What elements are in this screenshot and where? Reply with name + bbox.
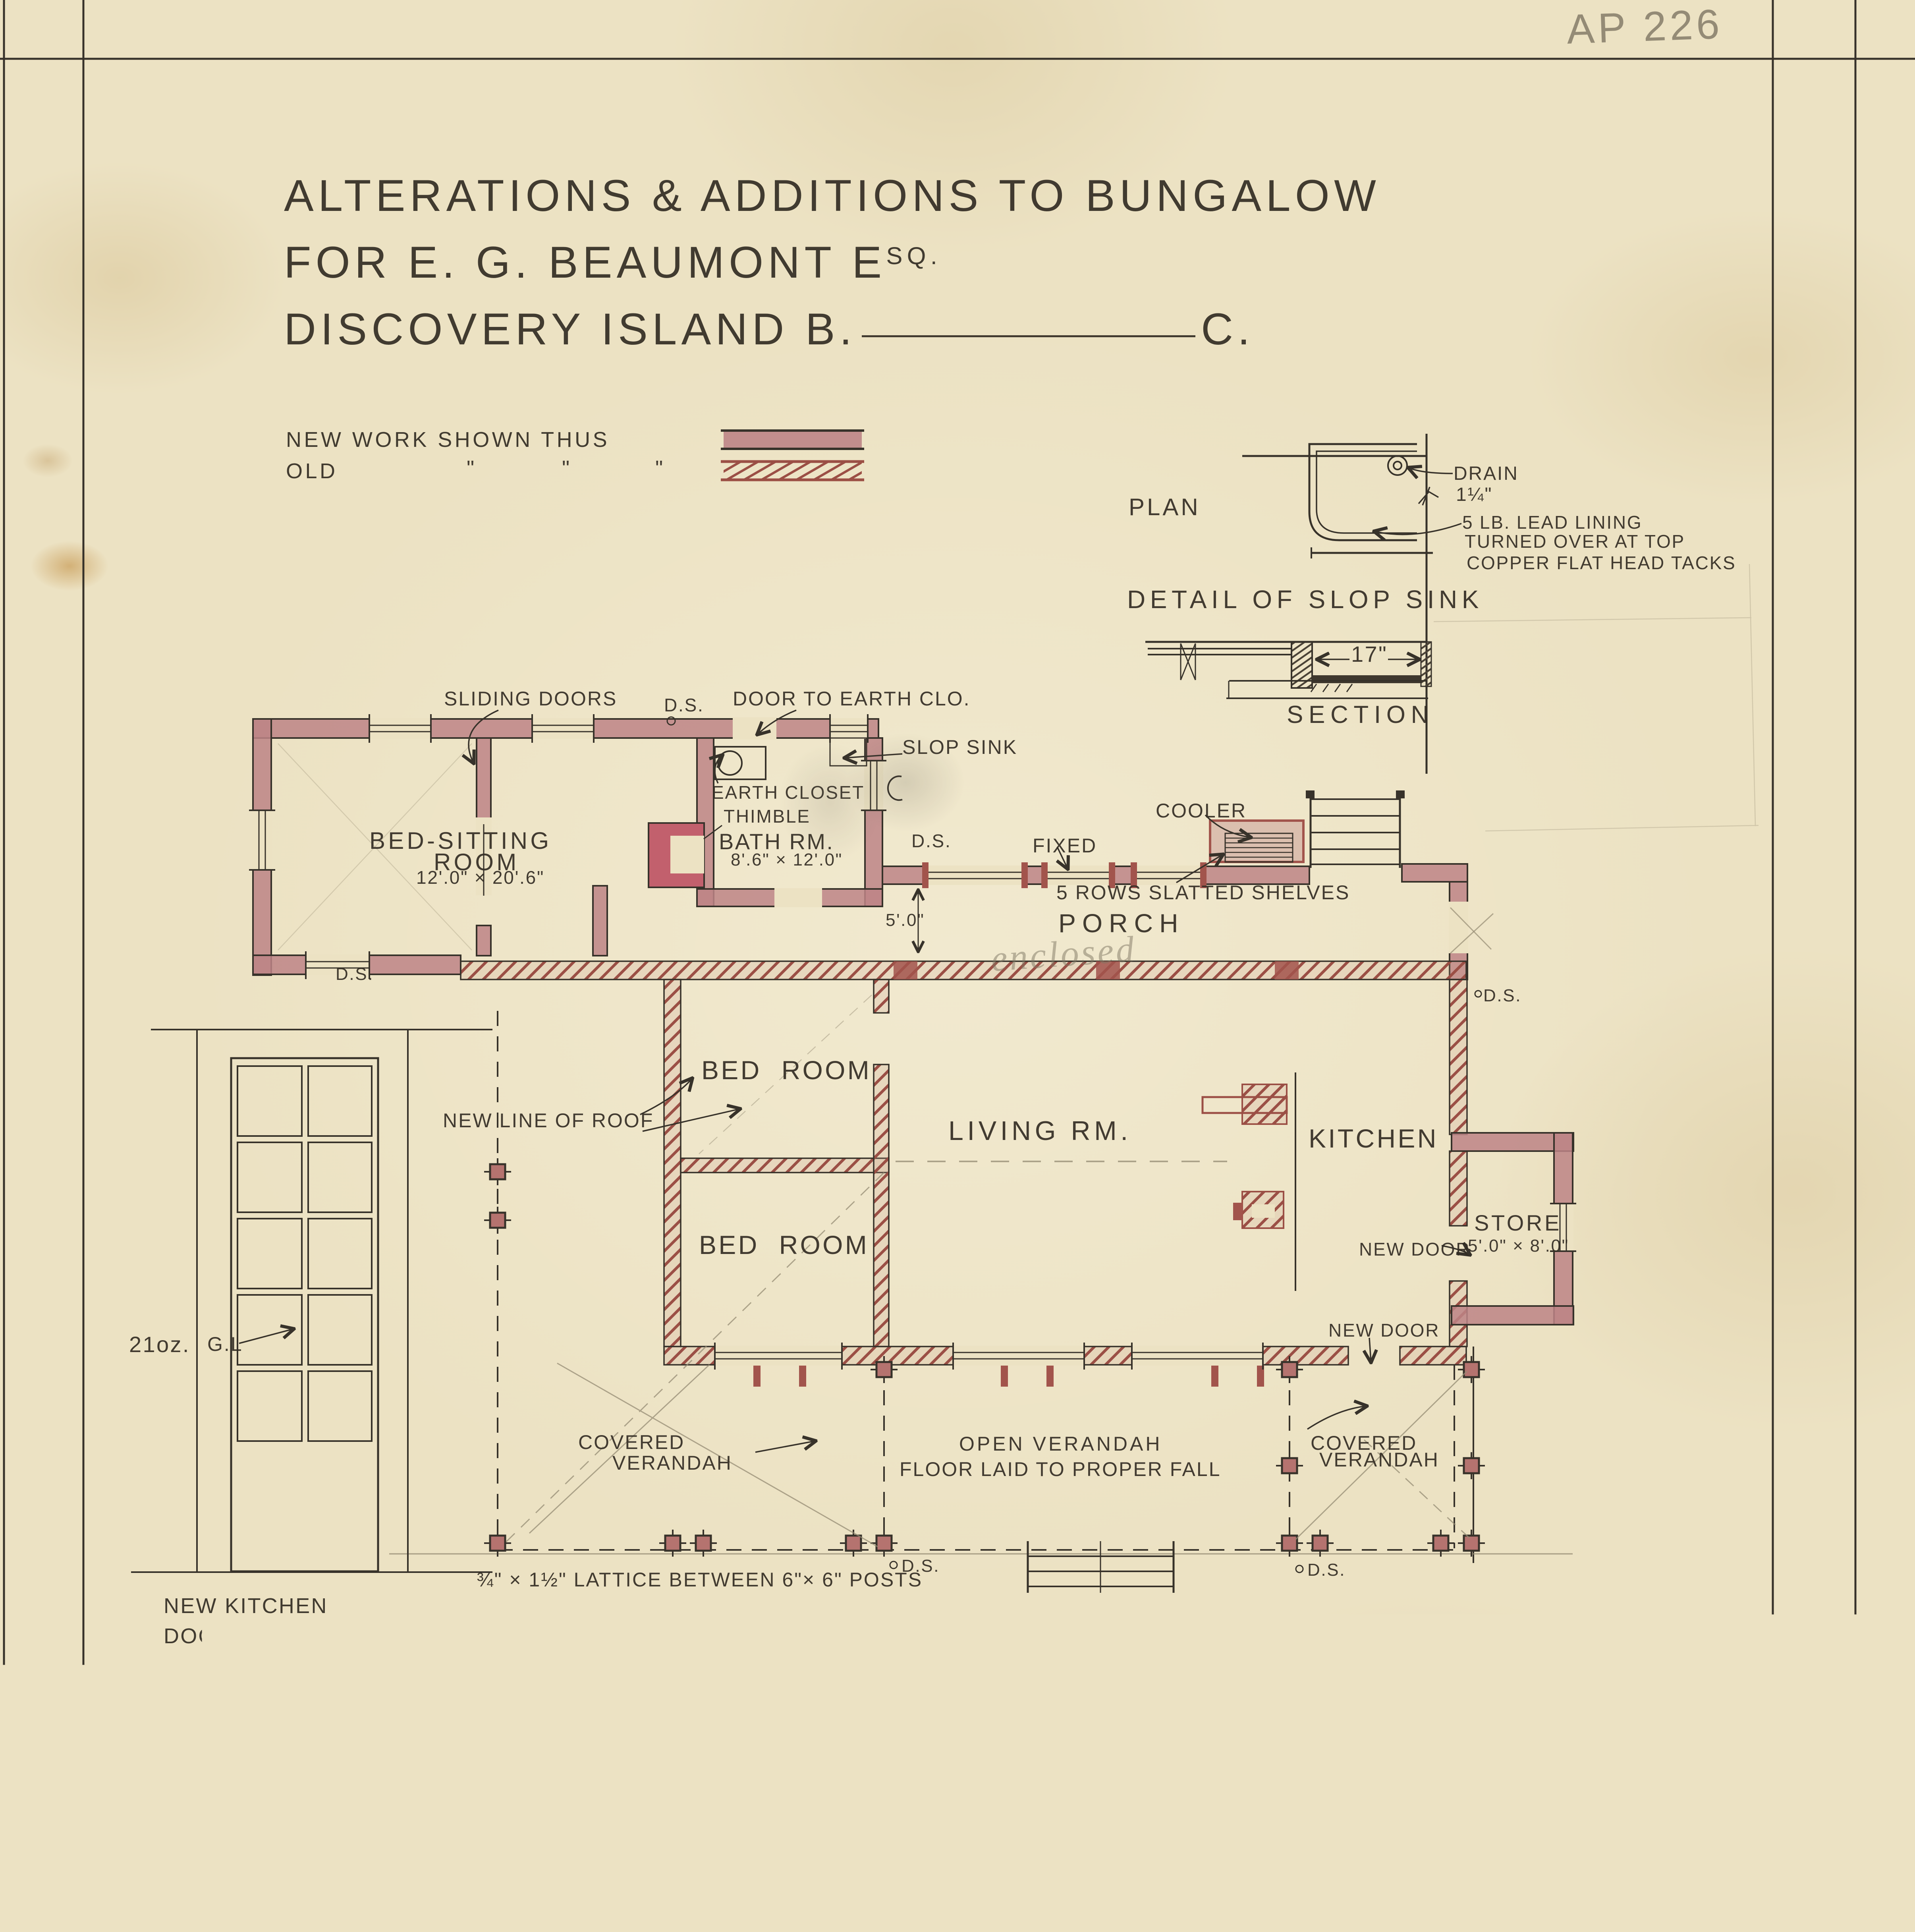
new-kitchen-door-caption-1: NEW KITCHEN	[164, 1594, 328, 1618]
lead-lining-note-2: TURNED OVER AT TOP	[1465, 531, 1685, 552]
architect-signature-line-1: S. MACLURE. ARCHITECT.	[1361, 1766, 1680, 1793]
kitchen-label: KITCHEN	[1309, 1123, 1438, 1153]
living-room-label: LIVING RM.	[948, 1115, 1132, 1146]
archive-number-pencil: AP 226	[1566, 0, 1724, 54]
bath-room-dimension: 8'.6" × 12'.0"	[731, 850, 843, 870]
title-line-2-main: FOR E. G. BEAUMONT E	[284, 238, 886, 287]
drain-label: DRAIN	[1454, 463, 1519, 485]
downspout-label-3: D.S.	[336, 964, 374, 984]
downspout-label-1: D.S.	[664, 694, 704, 716]
bed-room-label-2: BED ROOM	[699, 1230, 869, 1260]
downspout-label-2: D.S.	[911, 830, 952, 852]
kitchen-door-detail	[131, 1029, 492, 1572]
kitchen-interior	[1203, 1072, 1295, 1291]
title-line-2-esq: SQ.	[886, 242, 942, 270]
porch-depth-dimension: 5'.0"	[886, 910, 925, 930]
legend-new-work-label: NEW WORK SHOWN THUS	[286, 427, 610, 452]
title-line-3: DISCOVERY ISLAND B.C.	[284, 303, 1255, 355]
legend-swatches	[721, 431, 864, 480]
open-verandah-note: FLOOR LAID TO PROPER FALL	[900, 1458, 1221, 1481]
lattice-note: ¾" × 1½" LATTICE BETWEEN 6"× 6" POSTS	[477, 1568, 923, 1591]
lead-lining-note-3: COPPER FLAT HEAD TACKS	[1467, 552, 1736, 574]
covered-verandah-left-label-2: VERANDAH	[612, 1451, 732, 1474]
museum-stamp-line-2: OF HISTORIC ART	[1573, 1832, 1739, 1849]
title-line-3-right: C.	[1201, 304, 1254, 354]
downspout-label-6: D.S.	[1307, 1560, 1346, 1580]
downspout-label-4: D.S.	[1483, 986, 1521, 1006]
lead-lining-note-1: 5 LB. LEAD LINING	[1462, 512, 1642, 533]
new-door-label-1: NEW DOOR	[1359, 1238, 1470, 1260]
door-to-earth-closet-label: DOOR TO EARTH CLO.	[733, 687, 971, 710]
sliding-doors-label: SLIDING DOORS	[444, 687, 617, 710]
slop-sink-section	[1145, 642, 1431, 698]
floor-plan-caption: FLOOR PLAN .	[498, 1644, 848, 1683]
slatted-shelves-label: 5 ROWS SLATTED SHELVES	[1056, 881, 1350, 904]
title-line-2: FOR E. G. BEAUMONT ESQ.	[284, 237, 942, 288]
slop-sink-detail-heading: DETAIL OF SLOP SINK	[1127, 585, 1483, 614]
store-label: STORE	[1474, 1210, 1562, 1236]
store-dimension: 5'.0" × 8'.0"	[1468, 1236, 1569, 1256]
section-label: SECTION	[1287, 701, 1434, 729]
architect-signature-line-2: VICTORIA. B.C. JAN. 1922.	[1369, 1798, 1690, 1824]
new-line-of-roof-label: NEW LINE OF ROOF	[443, 1109, 654, 1132]
blank-line	[862, 335, 1195, 337]
legend-ditto-3: "	[655, 456, 664, 481]
glass-weight-label: 21oz.	[129, 1331, 190, 1357]
sink-width-dimension: 17"	[1351, 641, 1388, 667]
new-door-label-2: NEW DOOR	[1328, 1320, 1440, 1341]
slop-sink-label: SLOP SINK	[902, 736, 1017, 759]
covered-verandah-right-label-2: VERANDAH	[1319, 1448, 1439, 1471]
title-line-1: ALTERATIONS & ADDITIONS TO BUNGALOW	[284, 170, 1380, 221]
legend-old-label: OLD	[286, 459, 338, 483]
pipe-size-label: 1¼"	[1456, 484, 1492, 506]
fixed-window-label: FIXED	[1033, 834, 1097, 857]
glass-label: G.L	[207, 1333, 243, 1356]
new-kitchen-door-caption-2: DOOR .	[164, 1624, 247, 1648]
title-line-3-left: DISCOVERY ISLAND B.	[284, 304, 856, 354]
covered-verandah-left-label-1: COVERED	[578, 1431, 685, 1454]
earth-closet-label: EARTH CLOSET	[712, 782, 865, 803]
scale-note: SCALE ⅛ INCH TO 1 FOOT.	[137, 1763, 532, 1794]
bed-room-label-1: BED ROOM	[701, 1055, 871, 1085]
open-verandah-label: OPEN VERANDAH	[959, 1432, 1162, 1455]
drawing-sheet: AP 226 ALTERATIONS & ADDITIONS TO BUNGAL…	[0, 0, 1915, 1932]
cooler-label: COOLER	[1156, 799, 1247, 822]
bed-sitting-room-dimension: 12'.0" × 20'.6"	[416, 867, 544, 888]
old-walls	[461, 961, 1467, 1387]
thimble-label: THIMBLE	[724, 806, 811, 827]
floor-plan-linework	[0, 0, 1915, 1932]
legend-ditto-2: "	[562, 456, 571, 481]
slop-sink-plan-label: PLAN	[1129, 493, 1201, 521]
legend-ditto-1: "	[467, 456, 475, 481]
